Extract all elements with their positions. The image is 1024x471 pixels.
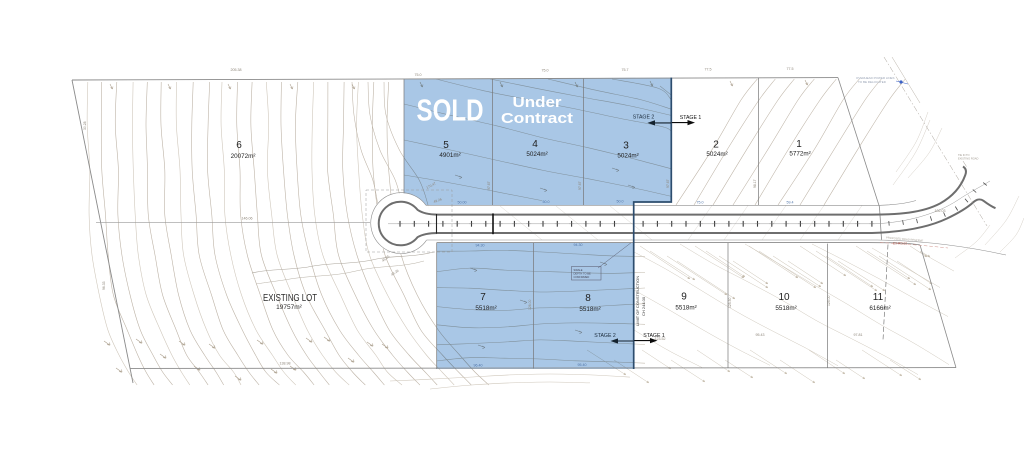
svg-text:5024m²: 5024m² (706, 151, 727, 158)
svg-text:97.67: 97.67 (666, 179, 670, 188)
svg-text:146.06: 146.06 (242, 217, 253, 221)
svg-text:EXISTING ROAD: EXISTING ROAD (958, 157, 978, 161)
svg-text:5024m²: 5024m² (526, 151, 547, 158)
svg-text:CH 244.00: CH 244.00 (641, 296, 646, 316)
svg-text:11: 11 (873, 292, 884, 303)
svg-text:LIMIT OF CONSTRUCTION: LIMIT OF CONSTRUCTION (635, 276, 640, 326)
svg-text:EX RD 01: EX RD 01 (893, 242, 907, 246)
svg-text:TO BE RELOCATED: TO BE RELOCATED (858, 80, 887, 84)
svg-text:6166m²: 6166m² (869, 305, 890, 312)
svg-text:5518m²: 5518m² (475, 305, 496, 312)
svg-text:5772m²: 5772m² (789, 151, 810, 158)
svg-text:95.40: 95.40 (578, 363, 587, 367)
svg-text:9: 9 (681, 292, 687, 303)
svg-text:77.5: 77.5 (787, 67, 794, 71)
svg-text:3: 3 (623, 141, 629, 152)
svg-text:125.00: 125.00 (827, 296, 831, 306)
svg-text:19757m²: 19757m² (276, 304, 302, 311)
svg-text:5: 5 (443, 140, 449, 151)
svg-text:STAGE 2: STAGE 2 (633, 115, 655, 121)
svg-text:77.5: 77.5 (705, 68, 712, 72)
svg-text:SOLD: SOLD (417, 93, 484, 128)
svg-text:138.98: 138.98 (280, 362, 291, 366)
svg-text:59.4: 59.4 (787, 200, 794, 204)
svg-text:Contract: Contract (501, 110, 573, 127)
svg-text:75.7: 75.7 (622, 68, 629, 72)
svg-text:50.00: 50.00 (458, 200, 467, 204)
svg-text:5518m²: 5518m² (579, 306, 600, 313)
svg-text:Under: Under (513, 94, 562, 111)
svg-text:EXISTING LOT: EXISTING LOT (263, 292, 317, 304)
svg-text:5518m²: 5518m² (775, 305, 796, 312)
svg-text:75.0: 75.0 (542, 69, 549, 73)
svg-text:98.17: 98.17 (753, 179, 757, 188)
svg-text:102.03: 102.03 (935, 209, 946, 213)
svg-text:8: 8 (585, 293, 591, 304)
svg-text:CONFIRMED: CONFIRMED (574, 275, 590, 279)
svg-text:96.33: 96.33 (102, 281, 106, 290)
svg-text:7: 7 (480, 292, 486, 303)
svg-text:97.67: 97.67 (487, 181, 491, 190)
svg-text:DEPTH TO BE: DEPTH TO BE (574, 271, 591, 275)
svg-text:75.0: 75.0 (415, 73, 422, 77)
svg-text:30.28: 30.28 (83, 121, 87, 130)
svg-text:TIE IN TO: TIE IN TO (958, 153, 970, 157)
svg-text:5518m²: 5518m² (675, 305, 696, 312)
svg-text:20072m²: 20072m² (231, 153, 256, 160)
svg-text:10: 10 (778, 292, 790, 303)
svg-text:50.0: 50.0 (543, 200, 550, 204)
svg-text:123.52: 123.52 (655, 337, 666, 341)
svg-text:4: 4 (532, 139, 538, 150)
svg-text:97.67: 97.67 (578, 181, 582, 190)
svg-text:STAGE 1: STAGE 1 (680, 115, 702, 121)
svg-text:94.30: 94.30 (476, 243, 485, 247)
svg-text:125.50: 125.50 (728, 298, 732, 308)
svg-text:205.38: 205.38 (231, 68, 242, 72)
svg-text:5024m²: 5024m² (617, 153, 638, 160)
svg-text:126.00: 126.00 (528, 300, 532, 310)
svg-text:96.40: 96.40 (474, 363, 483, 367)
svg-text:2: 2 (713, 140, 719, 151)
svg-text:94.30: 94.30 (574, 243, 583, 247)
svg-text:75.0: 75.0 (697, 201, 704, 205)
svg-text:1: 1 (796, 139, 802, 150)
svg-text:SWALE: SWALE (574, 268, 583, 272)
svg-text:STAGE 2: STAGE 2 (594, 333, 616, 339)
svg-text:50.0: 50.0 (617, 199, 624, 203)
svg-text:95.43: 95.43 (756, 333, 765, 337)
svg-text:6: 6 (236, 140, 242, 151)
svg-text:4901m²: 4901m² (439, 152, 460, 159)
svg-text:97.81: 97.81 (854, 333, 863, 337)
